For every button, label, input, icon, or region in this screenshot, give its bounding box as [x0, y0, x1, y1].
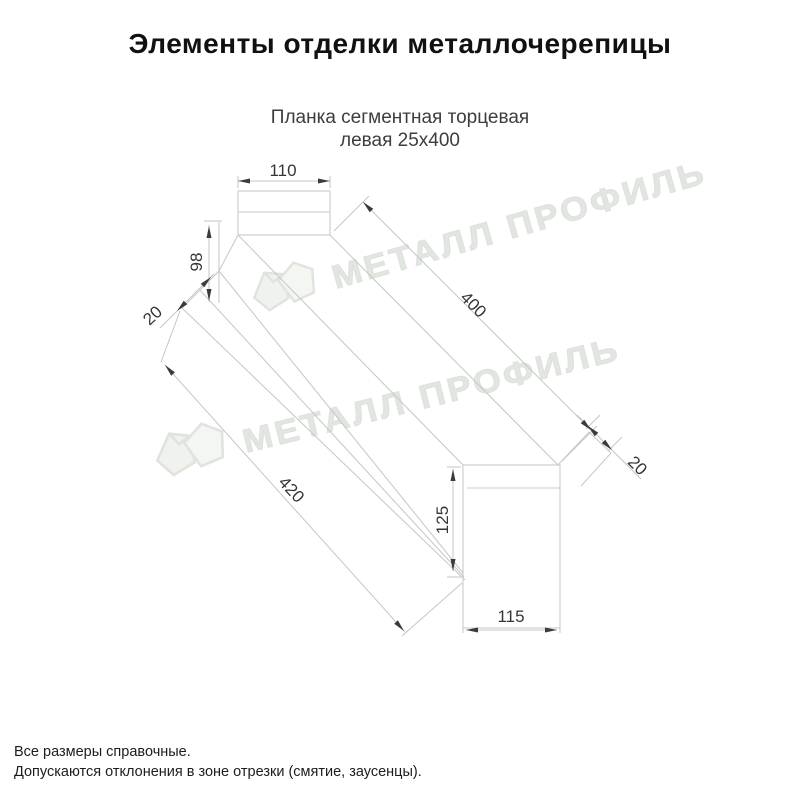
- dimension-label-end-width: 115: [497, 607, 524, 626]
- dimension-label-left-height: 98: [187, 253, 206, 272]
- dimension-label-end-flange: 20: [624, 452, 651, 479]
- technical-drawing: 110 98 20 400 420 20 125 115: [0, 0, 800, 800]
- footer-note-2: Допускаются отклонения в зоне отрезки (с…: [14, 762, 774, 782]
- footer-note-1: Все размеры справочные.: [14, 742, 774, 762]
- part-outline: [182, 191, 611, 628]
- dimension-label-top-width: 110: [269, 161, 296, 180]
- dimension-label-bottom-length: 420: [275, 473, 308, 507]
- footer-notes: Все размеры справочные. Допускаются откл…: [14, 742, 774, 782]
- dimension-label-end-height: 125: [433, 506, 452, 534]
- dimension-label-left-flange: 20: [139, 302, 166, 329]
- dimension-label-top-length: 400: [457, 288, 490, 321]
- dimension-labels: 110 98 20 400 420 20 125 115: [139, 161, 651, 626]
